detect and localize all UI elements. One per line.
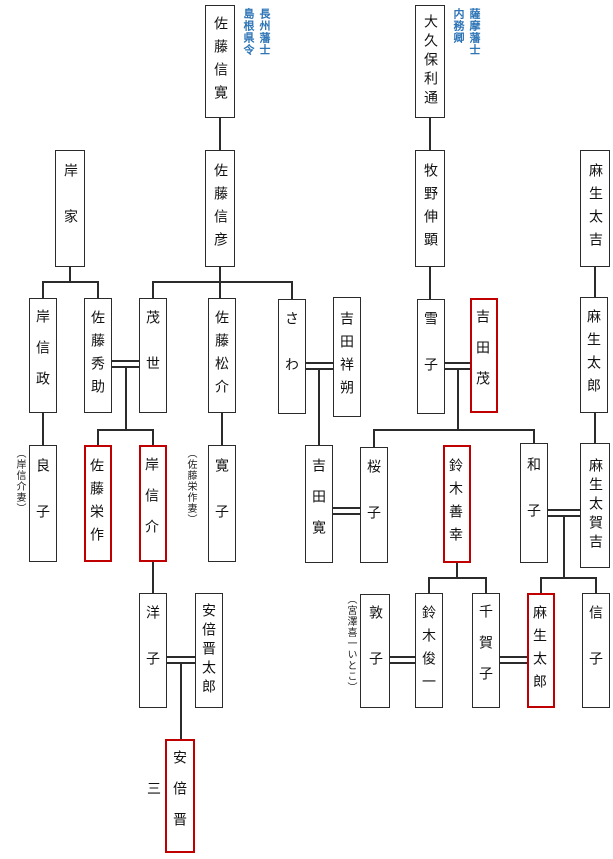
line-to-aso-taro — [540, 578, 542, 593]
line-sawa-shosaku-to-yoshida-hiroshi — [318, 369, 320, 445]
person-box-kazuko: 和子 — [520, 443, 548, 563]
person-box-sato-nobuhiro: 佐藤信寛 — [205, 5, 235, 118]
person-box-aso-taro: 麻生太郎 — [527, 593, 555, 708]
annotation-choshu-shimane: 長州藩士 島根県令 — [240, 8, 272, 80]
line-suzuki-zenko-children — [428, 577, 487, 579]
line-suzuki-zenko-stem — [456, 563, 458, 578]
line-hidesuke-moyo-children — [97, 429, 154, 431]
line-to-sato-matsusuke — [219, 282, 221, 298]
line-nobumasa-to-ryoko — [42, 413, 44, 445]
person-box-moyo: 茂世 — [139, 298, 167, 413]
person-box-sato-hidesuke: 佐藤秀助 — [84, 298, 112, 413]
line-to-sato-hidesuke — [97, 282, 99, 298]
person-box-kishi-nobusuke: 岸信介 — [139, 445, 167, 562]
person-box-suzuki-zenko: 鈴木善幸 — [443, 445, 471, 563]
person-box-atsuko: 敦子 — [360, 594, 390, 708]
line-kazuko-takakichi-children — [540, 577, 597, 579]
line-yukiko-shigeru-child-stem — [457, 369, 459, 430]
line-sato-nobuhiro-to-nobuhiko — [219, 118, 221, 150]
person-box-chikako: 千賀子 — [472, 593, 500, 708]
line-to-moyo — [152, 282, 154, 298]
line-to-sawa — [291, 282, 293, 299]
person-box-kishi-nobumasa: 岸信政 — [29, 298, 57, 413]
person-box-yukiko: 雪子 — [417, 299, 445, 414]
line-kazuko-takakichi-child-stem — [563, 516, 565, 578]
line-sato-nobuhiko-stem — [219, 267, 221, 282]
line-takichi-to-taro-elder — [594, 267, 596, 297]
person-box-nobuko: 信子 — [582, 593, 610, 708]
person-box-suzuki-shunichi: 鈴木俊一 — [415, 593, 443, 708]
line-to-chikako — [485, 578, 487, 593]
line-sato-nobuhiko-children — [152, 281, 293, 283]
annotation-sato-eisaku-wife: （佐藤栄作妻） — [184, 448, 197, 560]
line-to-sato-eisaku — [97, 430, 99, 445]
person-box-aso-takakichi: 麻生太賀吉 — [580, 443, 610, 568]
person-box-sato-eisaku: 佐藤栄作 — [84, 445, 112, 562]
person-box-sakurako: 桜子 — [360, 447, 388, 563]
person-box-abe-shinzo: 安倍晋三 — [165, 739, 195, 853]
family-tree-diagram: 佐藤信寛 大久保利通 岸家 佐藤信彦 牧野伸顕 麻生太吉 岸信政 佐藤秀助 茂世… — [0, 0, 613, 859]
marriage-line-chikako-aso-taro — [500, 656, 527, 664]
annotation-satsuma-naimukyo: 薩摩藩士 内務卿 — [450, 8, 482, 80]
line-to-sakurako — [373, 430, 375, 447]
person-box-ryoko: 良子 — [29, 445, 57, 562]
line-kishi-family-children — [42, 281, 99, 283]
line-hidesuke-moyo-child-stem — [125, 366, 127, 430]
person-box-yoko: 洋子 — [139, 593, 167, 708]
person-box-kishi-family: 岸家 — [55, 150, 85, 267]
person-box-sawa: さわ — [278, 299, 306, 414]
person-box-makino-nobuaki: 牧野伸顕 — [415, 150, 445, 267]
line-to-kishi-nobumasa — [42, 282, 44, 298]
line-yukiko-shigeru-children — [373, 429, 535, 431]
person-box-sato-nobuhiko: 佐藤信彦 — [205, 150, 235, 267]
person-box-abe-shintaro: 安倍晋太郎 — [195, 593, 223, 708]
person-box-yoshida-shigeru: 吉田茂 — [470, 298, 498, 413]
person-box-hiroko: 寛子 — [208, 445, 236, 562]
line-okubo-to-makino — [429, 118, 431, 150]
line-to-kazuko — [533, 430, 535, 443]
annotation-kishi-nobusuke-wife: （岸信介妻） — [13, 448, 26, 560]
person-box-yoshida-hiroshi: 吉田寛 — [305, 445, 333, 563]
line-matsusuke-to-hiroko — [221, 413, 223, 445]
person-box-aso-takichi: 麻生太吉 — [580, 150, 610, 267]
marriage-line-atsuko-shunichi — [390, 656, 415, 664]
marriage-line-hiroshi-sakurako — [333, 507, 360, 515]
line-taro-elder-to-takakichi — [594, 413, 596, 443]
line-to-suzuki-shunichi — [428, 578, 430, 593]
line-kishi-family-stem — [69, 267, 71, 282]
annotation-miyazawa-cousin: （宮澤喜一いとこ） — [344, 594, 357, 714]
person-box-yoshida-shosaku: 吉田祥朔 — [333, 297, 361, 417]
line-yoko-shintaro-to-abe-shinzo — [180, 663, 182, 739]
line-makino-to-yukiko — [429, 267, 431, 299]
line-nobusuke-to-yoko — [152, 562, 154, 593]
line-to-nobuko — [595, 578, 597, 593]
line-to-kishi-nobusuke — [152, 430, 154, 445]
person-box-sato-matsusuke: 佐藤松介 — [208, 298, 236, 413]
person-box-okubo-toshimichi: 大久保利通 — [415, 5, 445, 118]
person-box-aso-taro-elder: 麻生太郎 — [580, 297, 608, 413]
